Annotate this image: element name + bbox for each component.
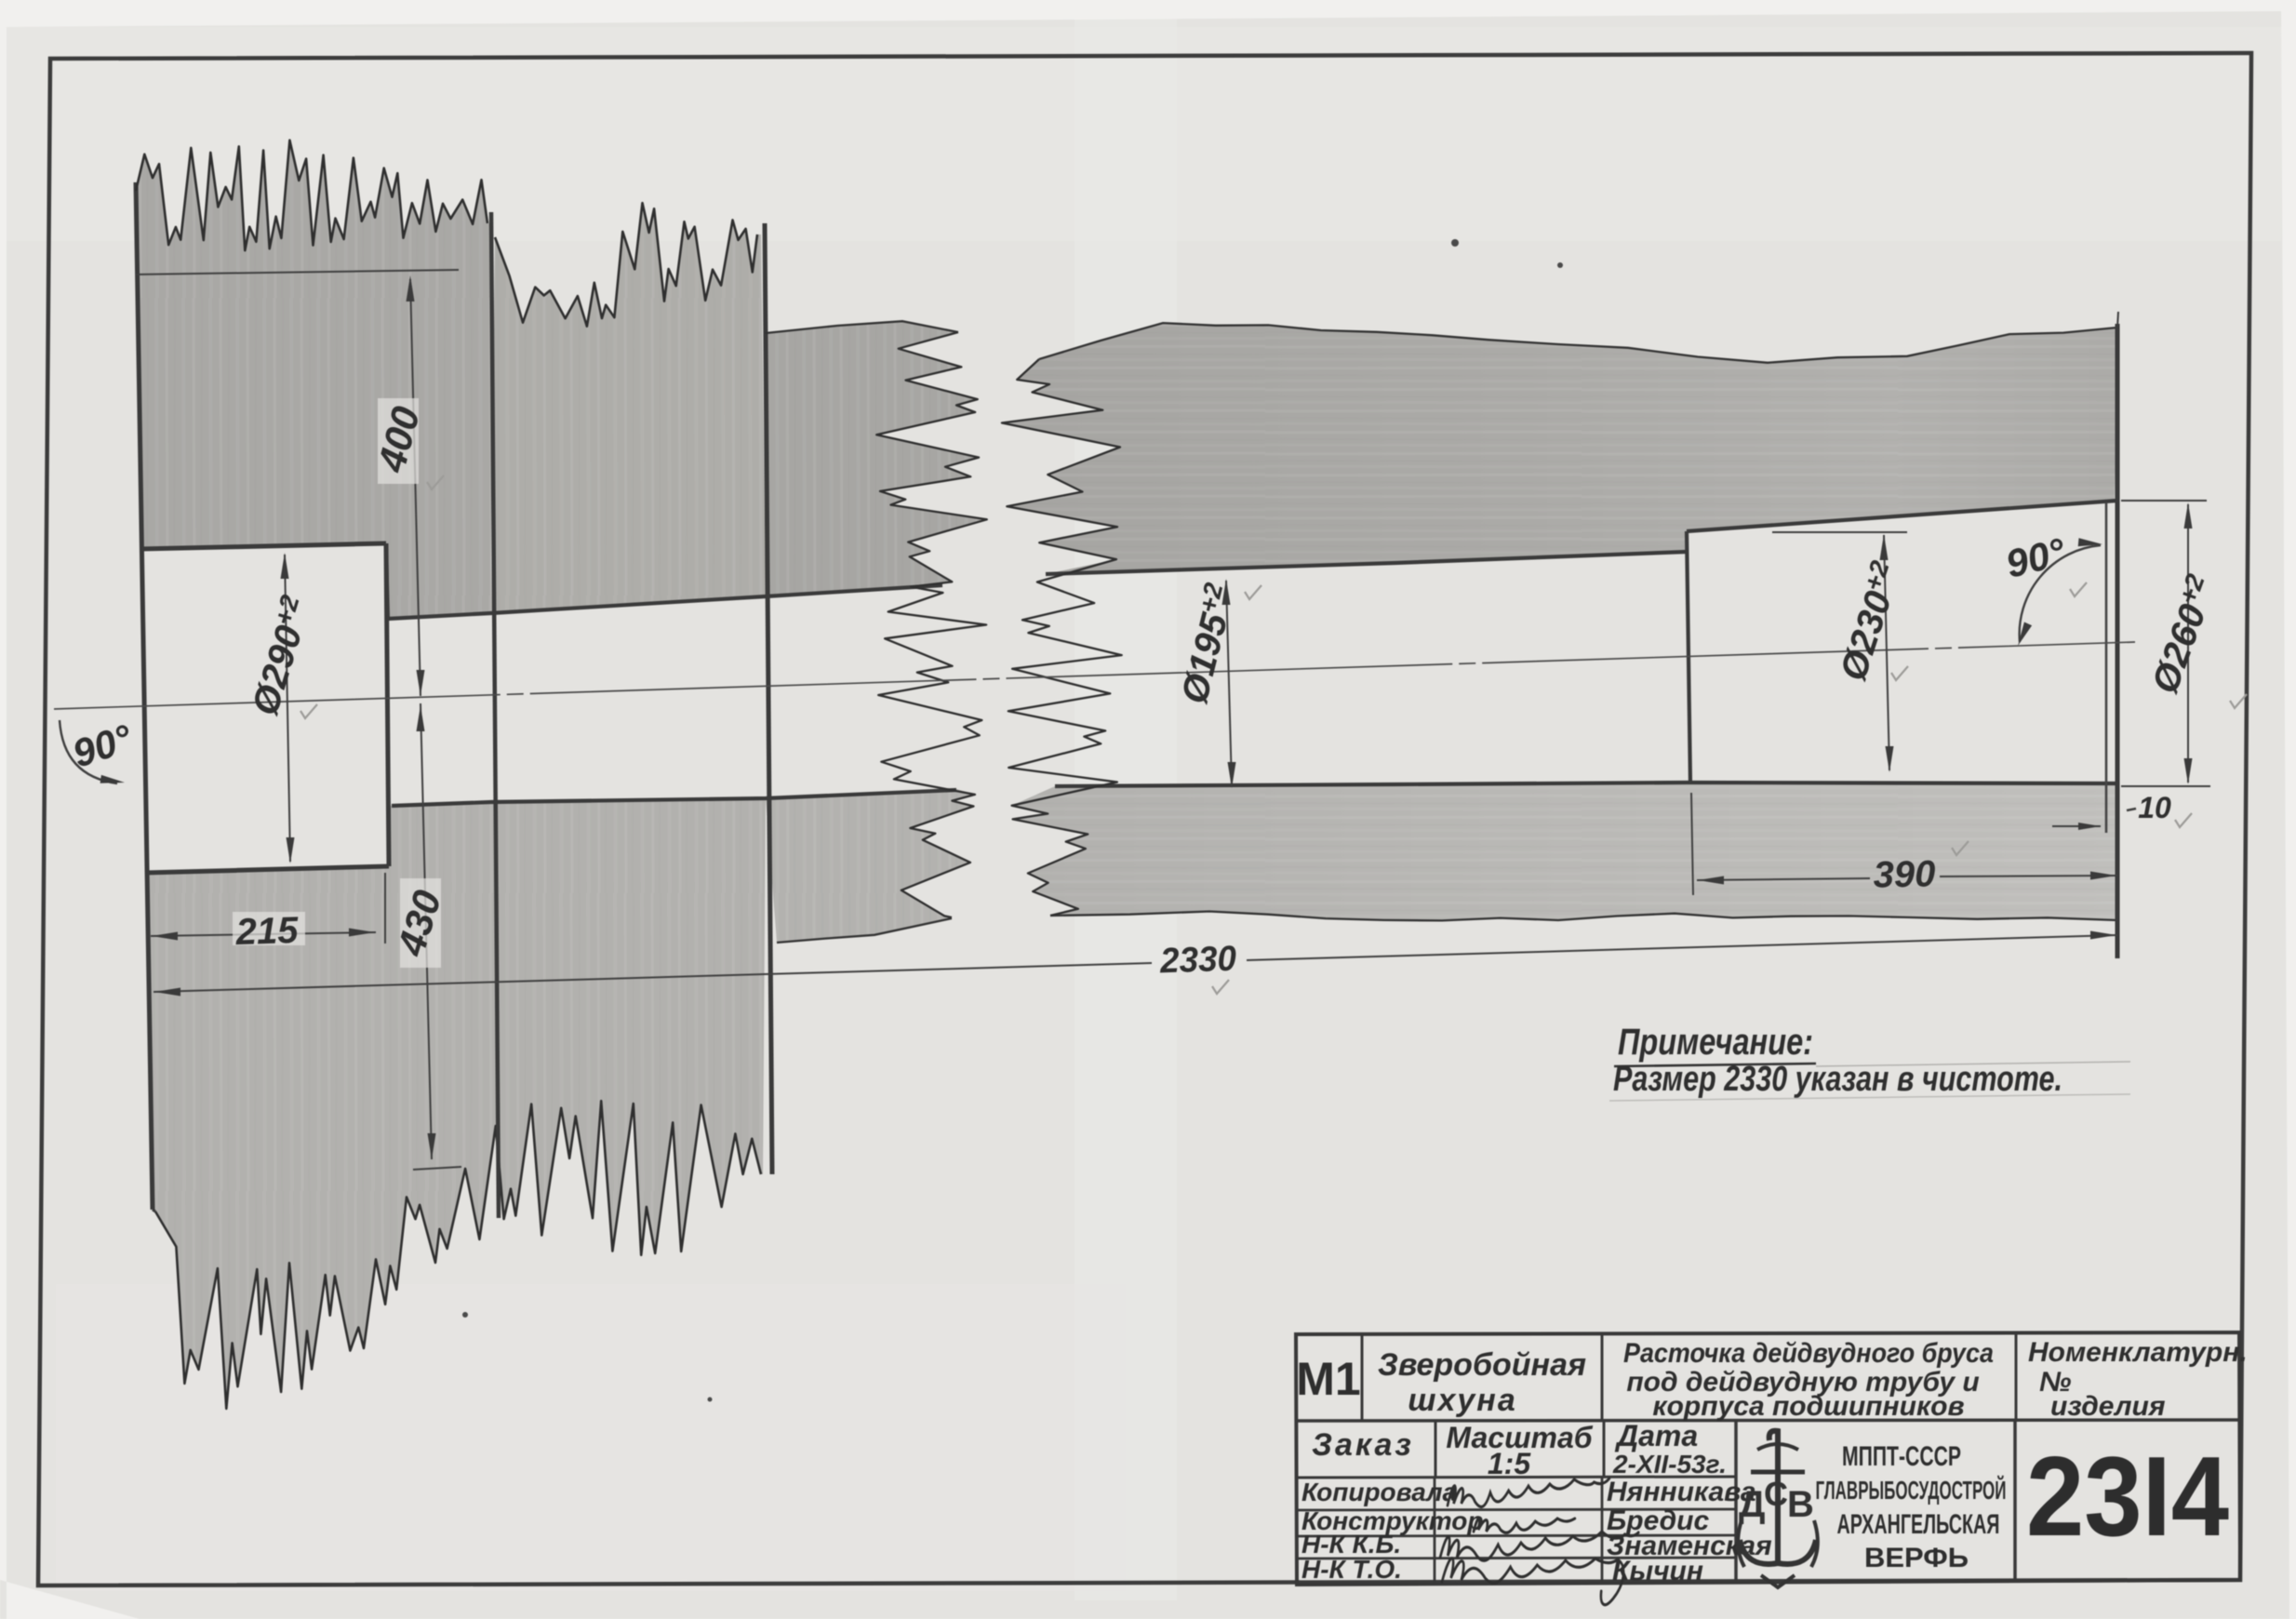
svg-text:Нянникава: Нянникава: [1607, 1477, 1756, 1507]
svg-text:В: В: [1787, 1484, 1814, 1525]
svg-text:шхуна: шхуна: [1408, 1383, 1517, 1418]
svg-text:Копировала: Копировала: [1302, 1478, 1457, 1506]
svg-text:АРХАНГЕЛЬСКАЯ: АРХАНГЕЛЬСКАЯ: [1837, 1509, 2000, 1540]
svg-text:Номенклатурн.: Номенклатурн.: [2028, 1337, 2248, 1368]
svg-text:Размер 2330 указан в чистоте.: Размер 2330 указан в чистоте.: [1613, 1060, 2062, 1099]
svg-text:Н-К Т.О.: Н-К Т.О.: [1302, 1555, 1402, 1584]
svg-text:23I4: 23I4: [2026, 1433, 2229, 1559]
svg-text:корпуса подшипников: корпуса подшипников: [1652, 1391, 1964, 1422]
svg-text:Кычин: Кычин: [1612, 1556, 1703, 1586]
svg-text:Заказ: Заказ: [1312, 1427, 1414, 1463]
svg-text:10: 10: [2138, 791, 2171, 824]
svg-text:215: 215: [234, 910, 300, 953]
svg-text:Примечание:: Примечание:: [1618, 1022, 1813, 1063]
svg-text:изделия: изделия: [2050, 1391, 2166, 1422]
svg-text:390: 390: [1873, 853, 1936, 895]
svg-text:МППТ-СССР: МППТ-СССР: [1842, 1441, 1961, 1472]
svg-text:Зверобойная: Зверобойная: [1378, 1347, 1586, 1383]
svg-text:М1: М1: [1296, 1353, 1360, 1405]
svg-text:Д: Д: [1739, 1484, 1766, 1525]
svg-text:1:5: 1:5: [1488, 1447, 1531, 1480]
svg-text:2-XII-53г.: 2-XII-53г.: [1612, 1450, 1727, 1479]
svg-text:ГЛАВРЫБОСУДОСТРОЙ: ГЛАВРЫБОСУДОСТРОЙ: [1816, 1475, 2007, 1505]
svg-text:С: С: [1764, 1475, 1788, 1513]
svg-text:ВЕРФЬ: ВЕРФЬ: [1864, 1543, 1969, 1573]
svg-text:Дата: Дата: [1614, 1419, 1698, 1452]
svg-text:2330: 2330: [1158, 940, 1236, 982]
svg-text:Расточка дейдвудного бруса: Расточка дейдвудного бруса: [1623, 1338, 1994, 1369]
